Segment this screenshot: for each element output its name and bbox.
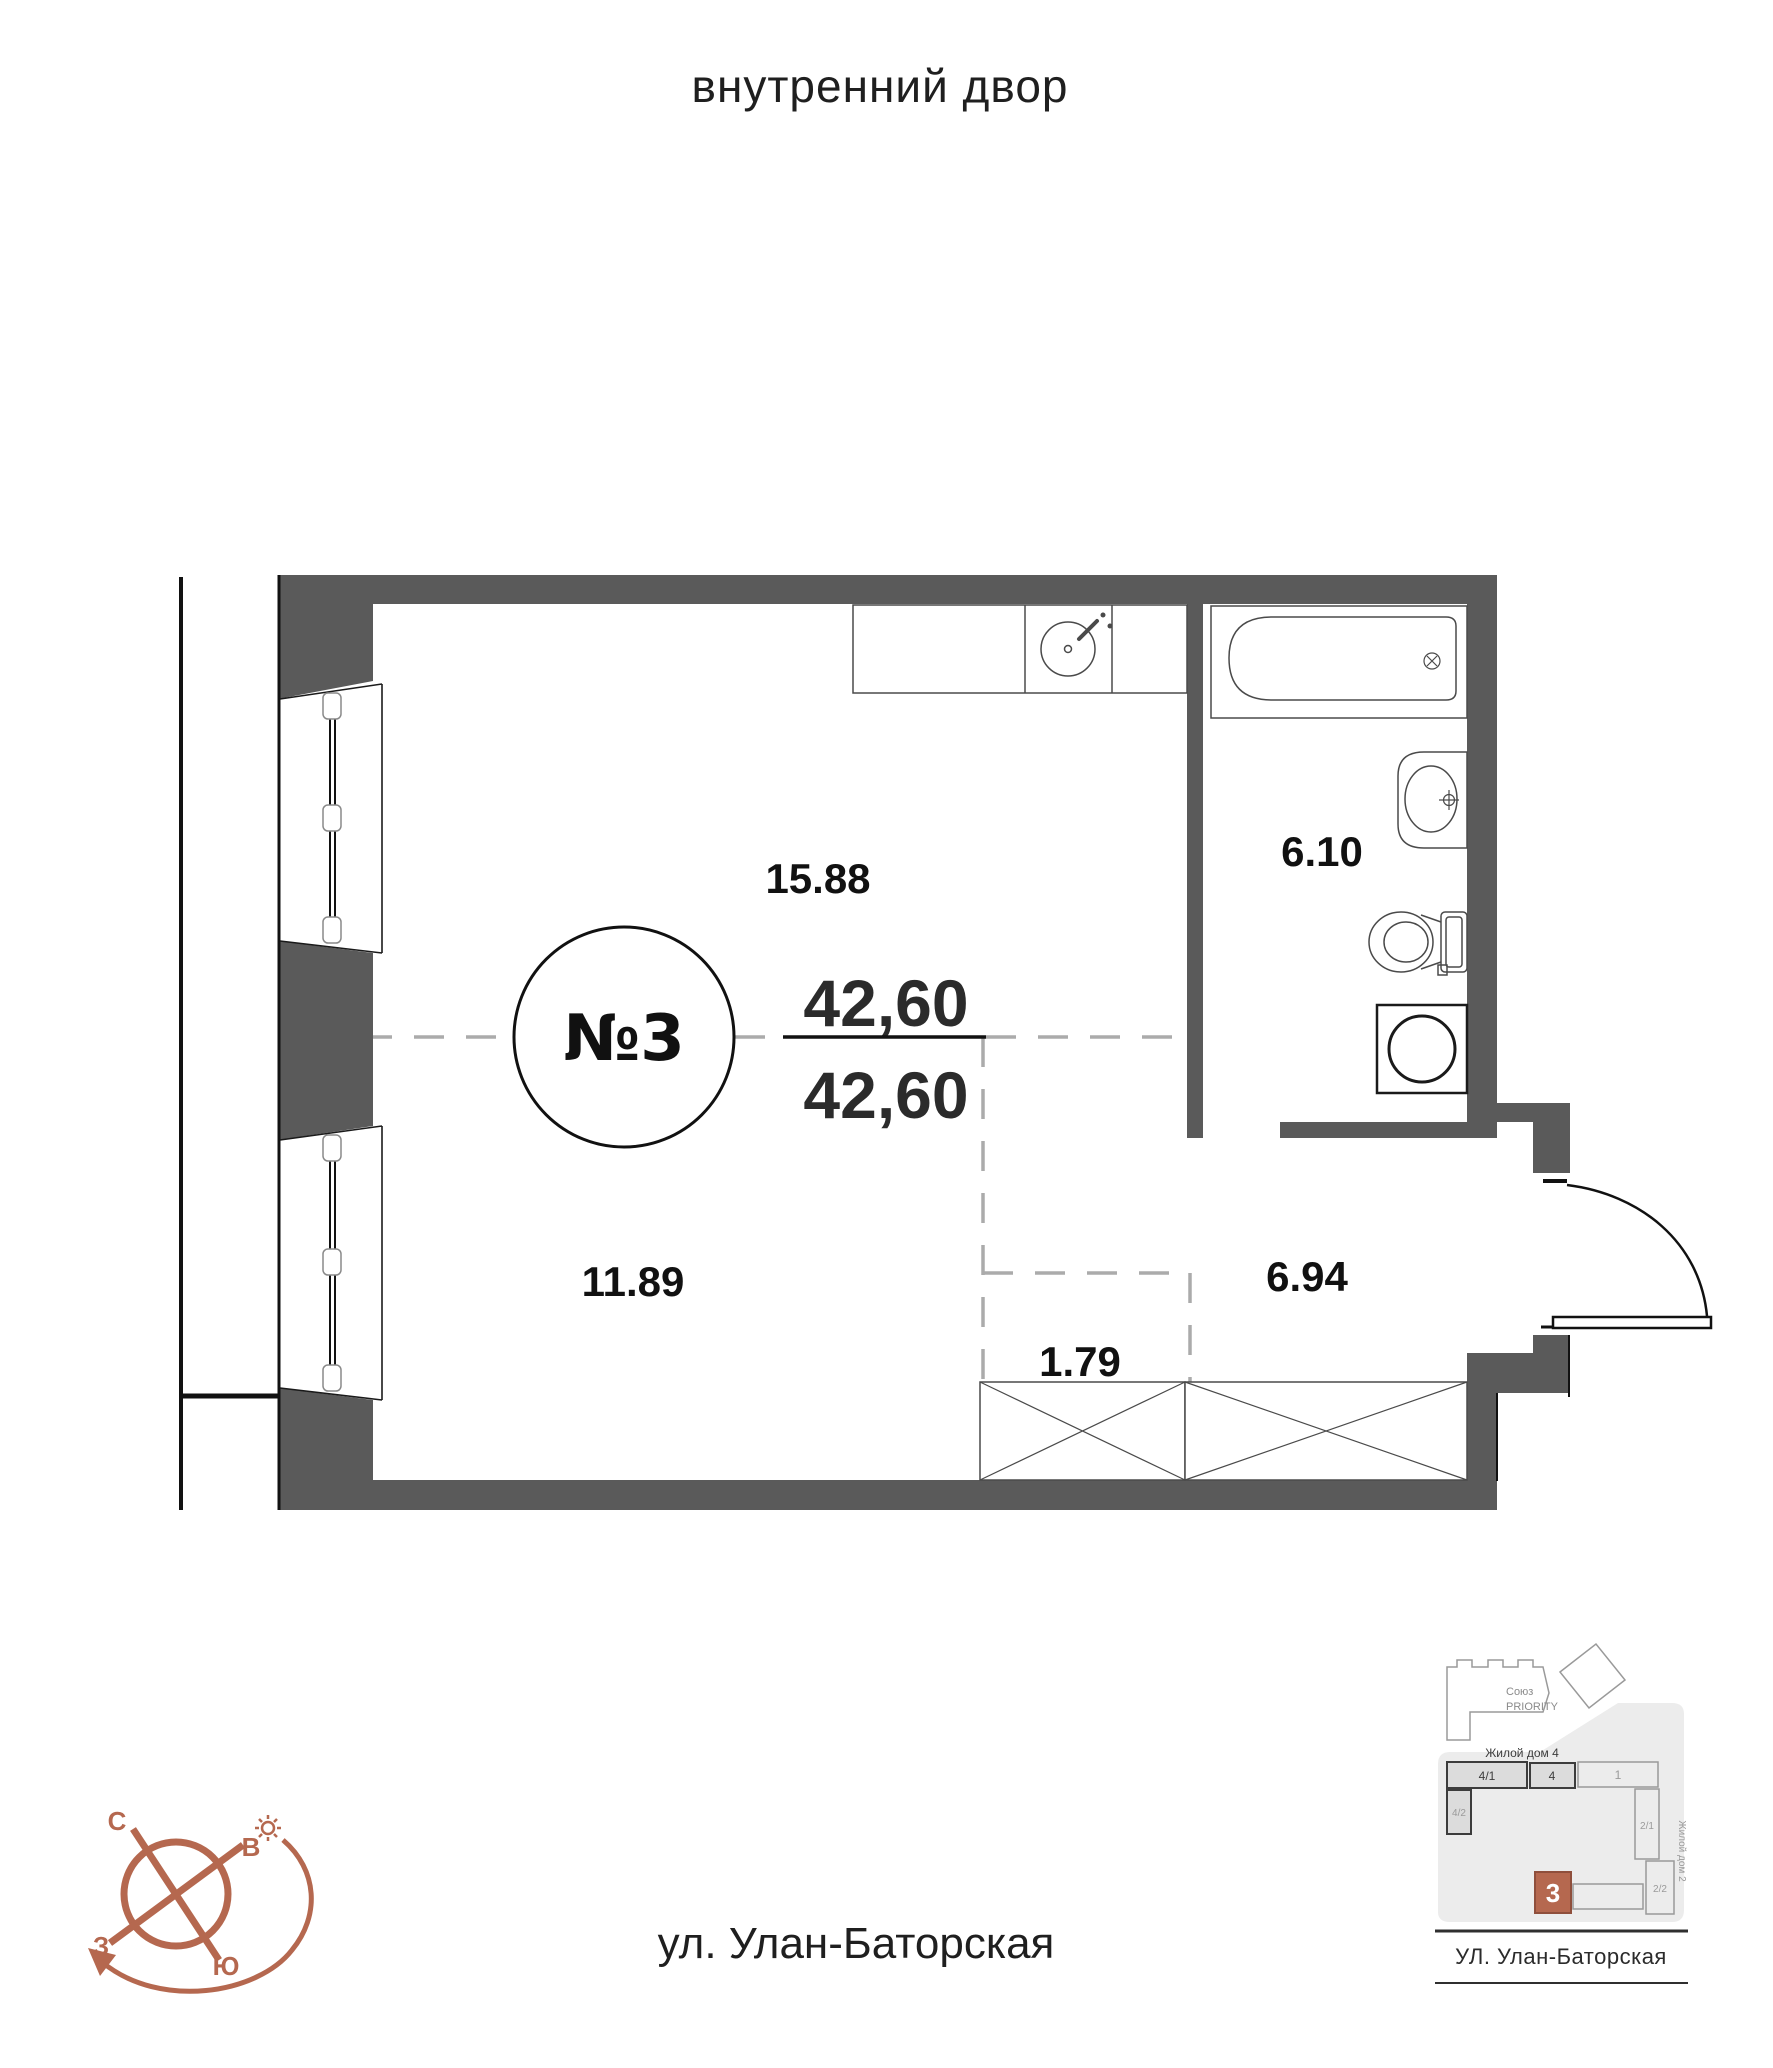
block-2-1-label: 2/1 bbox=[1640, 1821, 1654, 1832]
door-leaf bbox=[1553, 1317, 1711, 1328]
compass-north: С bbox=[108, 1806, 127, 1836]
compass-rose bbox=[88, 1815, 311, 1991]
building4-label: Жилой дом 4 bbox=[1485, 1746, 1559, 1760]
complex-name-2: PRIORITY bbox=[1506, 1701, 1559, 1713]
bathtub-icon bbox=[1211, 606, 1467, 718]
area-wardrobe: 1.79 bbox=[1039, 1338, 1121, 1385]
building2-label: Жилой дом 2 bbox=[1676, 1820, 1687, 1882]
wardrobes bbox=[980, 1382, 1467, 1480]
minimap-street: УЛ. Улан-Баторская bbox=[1455, 1944, 1667, 1969]
apartment-number: №3 bbox=[563, 1002, 685, 1076]
kitchen-counter bbox=[853, 605, 1187, 693]
toilet-icon bbox=[1369, 912, 1467, 975]
block-2-2-label: 2/2 bbox=[1653, 1884, 1667, 1895]
wall-sleeve-dot bbox=[1442, 1099, 1460, 1117]
compass-east: В bbox=[242, 1832, 261, 1862]
entrance-door bbox=[1541, 1181, 1711, 1328]
street-title: ул. Улан-Баторская bbox=[658, 1919, 1055, 1968]
door-swing-arc bbox=[1567, 1185, 1707, 1316]
compass-west: З bbox=[93, 1931, 109, 1961]
block-4-2-label: 4/2 bbox=[1452, 1808, 1466, 1819]
block-1-label: 1 bbox=[1615, 1768, 1622, 1782]
site-minimap: Союз PRIORITY Жилой дом 4 Жилой дом 2 4/… bbox=[1435, 1644, 1688, 1983]
complex-name-1: Союз bbox=[1506, 1686, 1533, 1698]
courtyard-title: внутренний двор bbox=[692, 60, 1069, 112]
area-hallway: 6.94 bbox=[1266, 1253, 1348, 1300]
total-area: 42,60 bbox=[803, 966, 968, 1040]
block-4-1-label: 4/1 bbox=[1479, 1769, 1496, 1783]
area-room: 11.89 bbox=[582, 1258, 685, 1305]
block-4-label: 4 bbox=[1549, 1769, 1556, 1783]
floorplan-page: внутренний двор ул. Улан-Баторская bbox=[0, 0, 1773, 2068]
living-area: 42,60 bbox=[803, 1058, 968, 1132]
compass-south: Ю bbox=[213, 1951, 240, 1981]
area-bathroom: 6.10 bbox=[1281, 828, 1363, 875]
area-fraction: 42,60 42,60 bbox=[783, 966, 986, 1132]
washbasin-icon bbox=[1398, 752, 1467, 848]
block-3-label: 3 bbox=[1546, 1878, 1560, 1908]
block-unlabeled bbox=[1573, 1884, 1643, 1909]
area-kitchen-living: 15.88 bbox=[765, 855, 870, 902]
floor-plan-canvas: внутренний двор ул. Улан-Баторская bbox=[0, 0, 1773, 2068]
washing-machine-icon bbox=[1377, 1005, 1467, 1093]
